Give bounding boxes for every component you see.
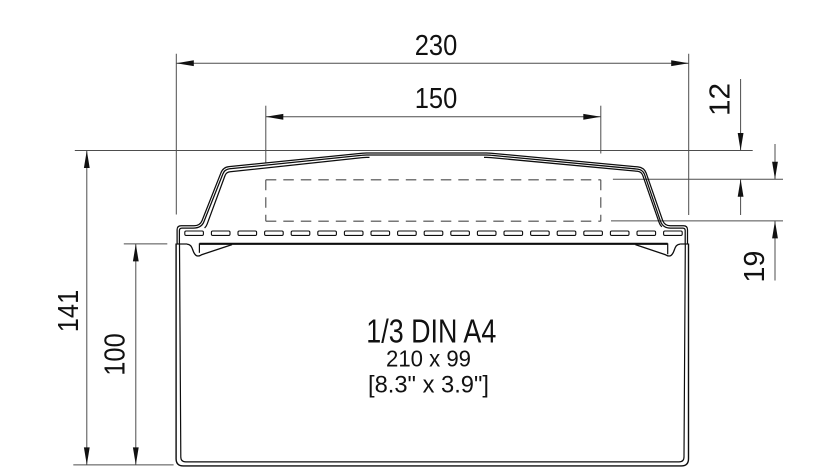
svg-text:12: 12 [705,83,737,116]
svg-text:150: 150 [415,83,458,115]
svg-text:[8.3" x 3.9"]: [8.3" x 3.9"] [368,372,489,399]
svg-text:1/3 DIN A4: 1/3 DIN A4 [366,313,496,350]
svg-text:19: 19 [739,251,771,283]
svg-text:210 x 99: 210 x 99 [386,346,471,372]
svg-text:230: 230 [415,30,458,62]
svg-text:100: 100 [99,333,131,376]
svg-text:141: 141 [53,290,85,333]
